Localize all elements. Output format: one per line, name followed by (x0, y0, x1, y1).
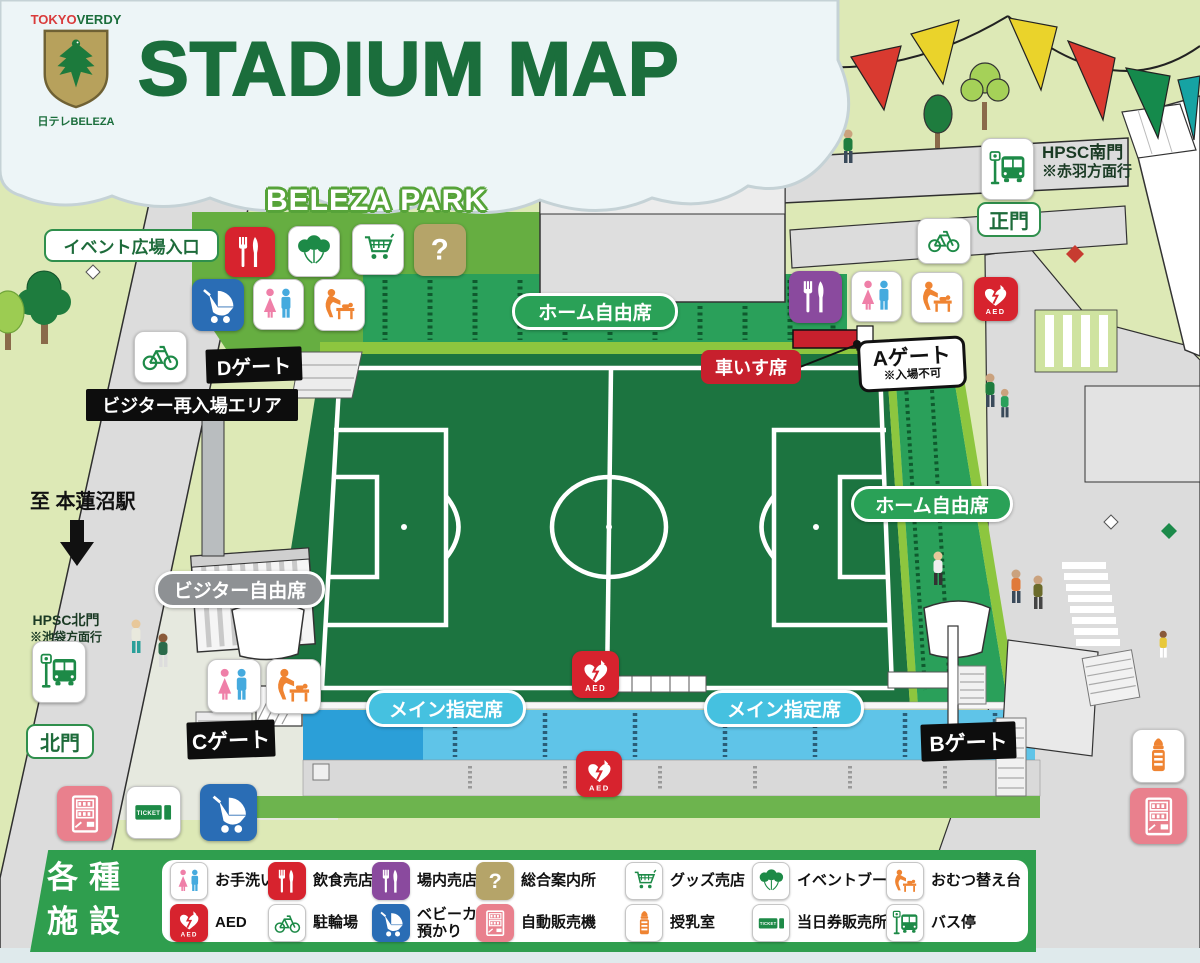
event-booth-icon (288, 226, 340, 277)
hpsc-south-gate-text: HPSC南門 ※赤羽方面行 (1042, 142, 1132, 182)
event-booth-icon (752, 862, 790, 900)
diaper-change-icon (886, 862, 924, 900)
legend-item-ticket-office: 当日券販売所 (752, 904, 887, 942)
legend-item-stadium-shop: 場内売店 (372, 862, 477, 900)
diaper-change-icon (911, 272, 963, 323)
gate-b-label: Bゲート (920, 721, 1016, 761)
hpsc-north-gate-text: HPSC北門 ※池袋方面行 (18, 612, 114, 645)
vending-machine-icon (1130, 788, 1187, 844)
ticket-office-icon (752, 904, 790, 942)
main-reserved-right-label: メイン指定席 (704, 690, 864, 727)
restroom-icon (207, 659, 261, 713)
diaper-change-icon (266, 659, 321, 714)
food-stall-icon (268, 862, 306, 900)
west-wall (202, 416, 224, 556)
north-gate-label: 北門 (26, 724, 94, 759)
legend-item-food-stall: 飲食売店 (268, 862, 373, 900)
legend-item-diaper-change: おむつ替え台 (886, 862, 1021, 900)
club-logo-wordmark: TOKYOVERDY (24, 12, 128, 27)
to-station-text: 至 本蓮沼駅 (30, 490, 136, 515)
restroom-icon (851, 271, 902, 322)
stroller-check-icon (192, 279, 244, 331)
aed-icon (974, 277, 1018, 321)
to-station-arrow-icon (58, 520, 98, 570)
home-free-seats-north-label: ホーム自由席 (512, 293, 678, 330)
home-free-seats-east-label: ホーム自由席 (851, 486, 1013, 522)
stadium-shop-icon (372, 862, 410, 900)
stadium-shop-icon (789, 271, 842, 323)
legend-item-goods-shop: グッズ売店 (625, 862, 745, 900)
club-crest-icon (39, 27, 113, 111)
vending-machine-icon (57, 786, 112, 841)
aed-icon (170, 904, 208, 942)
wheelchair-platform (793, 330, 859, 348)
stroller-check-icon (372, 904, 410, 942)
information-icon (414, 224, 466, 276)
club-logo-beleza: 日テレBELEZA (24, 113, 128, 129)
event-plaza-entrance-label: イベント広場入口 (44, 229, 219, 262)
club-logo: TOKYOVERDY 日テレBELEZA (24, 12, 128, 144)
goods-shop-icon (352, 224, 404, 275)
legend-item-bus-stop: バス停 (886, 904, 976, 942)
main-gate-label: 正門 (977, 202, 1041, 237)
aed-icon (576, 751, 622, 797)
bicycle-parking-icon (917, 218, 971, 264)
goods-shop-icon (625, 862, 663, 900)
beleza-park-title: BELEZA PARK (266, 184, 487, 218)
visitor-free-seats-label: ビジター自由席 (155, 571, 325, 608)
bus-stop-icon (886, 904, 924, 942)
legend-item-event-booth: イベントブース (752, 862, 901, 900)
gate-d-label: Dゲート (205, 346, 302, 383)
main-reserved-left-label: メイン指定席 (366, 690, 526, 727)
legend-item-aed: AED (170, 904, 247, 942)
nursing-room-icon (1132, 729, 1185, 783)
wheelchair-seats-label: 車いす席 (701, 350, 801, 384)
bicycle-parking-icon (134, 331, 187, 383)
legend-item-vending-machine: 自動販売機 (476, 904, 596, 942)
gate-a-label: Aゲート ※入場不可 (857, 335, 968, 393)
information-icon (476, 862, 514, 900)
legend-item-nursing-room: 授乳室 (625, 904, 715, 942)
bicycle-parking-icon (268, 904, 306, 942)
gate-c-label: Cゲート (186, 719, 275, 759)
legend-item-restroom: お手洗い (170, 862, 275, 900)
bus-stop-icon (981, 138, 1034, 200)
restroom-icon (253, 279, 304, 330)
main-stand-concourse (303, 760, 1040, 796)
bus-stop-icon (32, 641, 86, 703)
restroom-icon (170, 862, 208, 900)
visitor-reentry-label: ビジター再入場エリア (86, 389, 298, 421)
vending-machine-icon (476, 904, 514, 942)
food-stall-icon (225, 227, 275, 277)
aed-icon (572, 651, 619, 698)
legend-item-information: 総合案内所 (476, 862, 596, 900)
diaper-change-icon (314, 279, 365, 331)
page-title: STADIUM MAP (138, 26, 680, 113)
legend-item-bicycle-parking: 駐輪場 (268, 904, 358, 942)
nursing-room-icon (625, 904, 663, 942)
stadium-map: ? (0, 0, 1200, 963)
stroller-check-icon (200, 784, 257, 841)
legend-title: 各種 施設 (47, 856, 131, 944)
ticket-office-icon (126, 786, 181, 839)
